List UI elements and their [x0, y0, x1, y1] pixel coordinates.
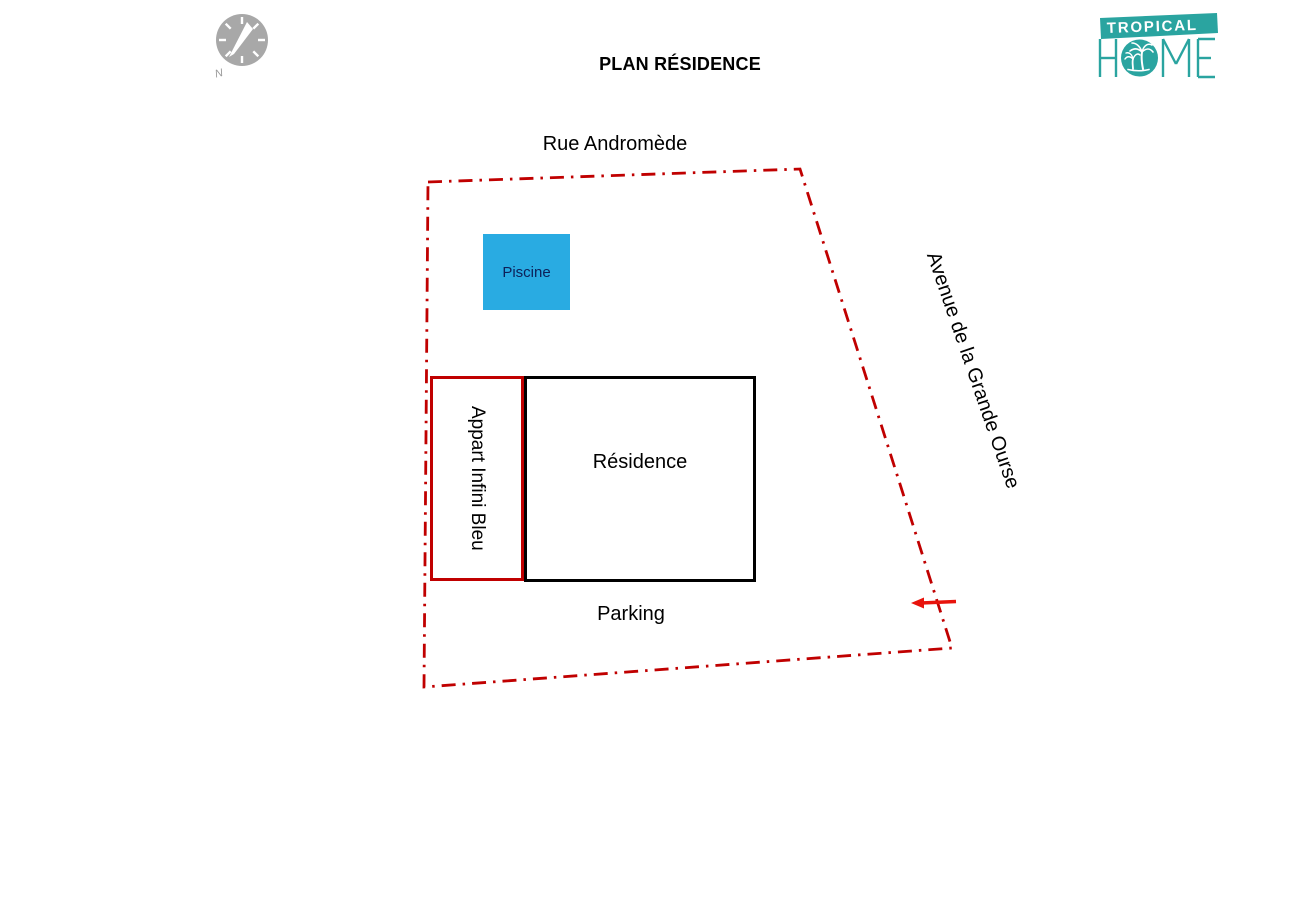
- compass-north-label: N: [214, 67, 224, 81]
- page-title: PLAN RÉSIDENCE: [540, 54, 820, 75]
- compass-icon: N: [214, 12, 276, 86]
- pool-label: Piscine: [502, 264, 550, 281]
- residence-label: Résidence: [593, 451, 688, 474]
- residence-building: Résidence: [524, 376, 756, 582]
- pool-area: Piscine: [483, 234, 570, 310]
- apartment-label: Appart Infini Bleu: [466, 406, 488, 551]
- parking-label: Parking: [556, 603, 706, 626]
- entrance-arrow-icon: [911, 598, 956, 609]
- street-label-rue-andromede: Rue Andromède: [515, 133, 715, 156]
- plan-canvas: PLAN RÉSIDENCE N TROPICAL: [0, 0, 1300, 900]
- tropical-home-logo: TROPICAL: [1095, 10, 1227, 82]
- logo-banner-text: TROPICAL: [1107, 17, 1199, 37]
- apartment-area: Appart Infini Bleu: [430, 376, 524, 581]
- logo-palm-o-icon: [1121, 40, 1158, 77]
